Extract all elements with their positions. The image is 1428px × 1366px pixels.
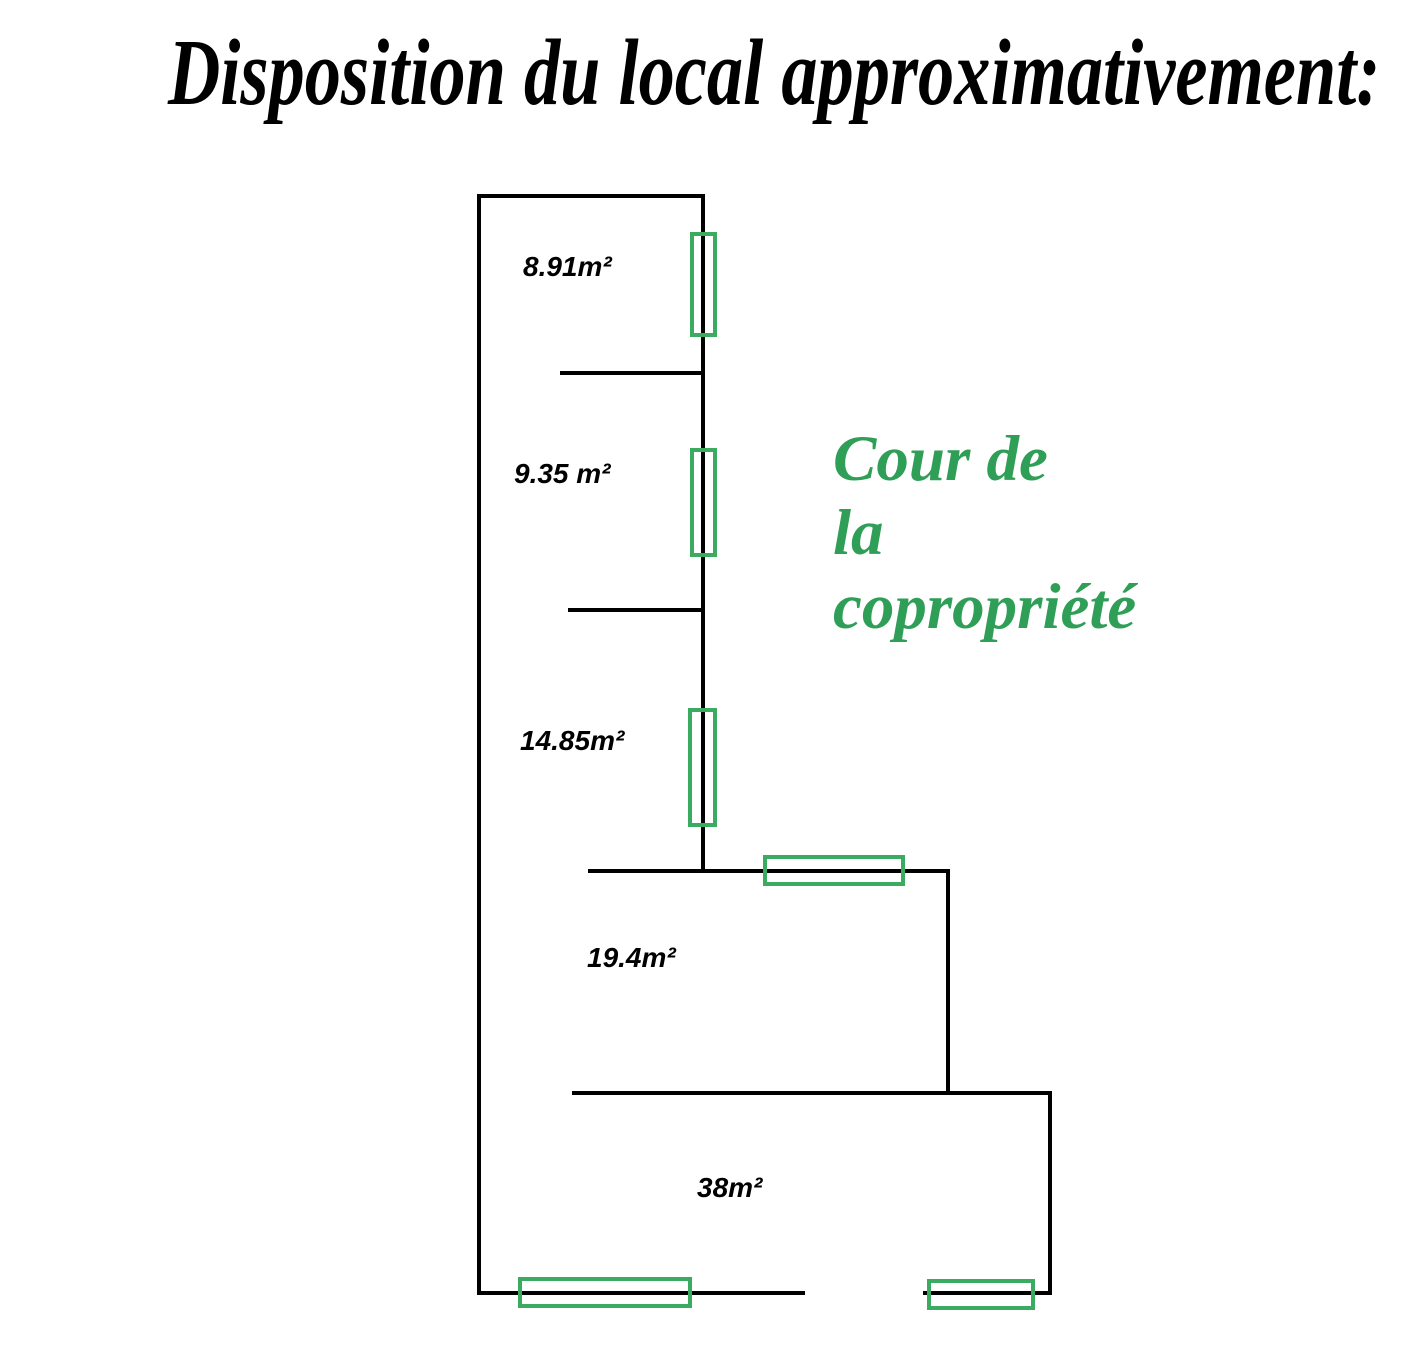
wall-left [477, 194, 481, 1295]
window-room-8-91 [690, 232, 717, 337]
wall-room38-right [1048, 1091, 1052, 1295]
window-room-38-left [518, 1277, 692, 1308]
courtyard-label: Cour de la copropriété [833, 422, 1136, 644]
wall-divider-2 [568, 608, 705, 612]
room-label-38: 38m² [697, 1174, 762, 1202]
page-title: Disposition du local approximativement: [168, 24, 1380, 123]
window-room-14-85 [688, 708, 717, 827]
window-room-38-right [927, 1279, 1035, 1310]
room-label-19-4: 19.4m² [587, 944, 676, 972]
floor-plan-canvas: Disposition du local approximativement: … [0, 0, 1428, 1366]
wall-room38-top [572, 1091, 1052, 1095]
wall-room19-right [946, 869, 950, 1095]
wall-divider-1 [560, 371, 705, 375]
wall-top [477, 194, 705, 198]
courtyard-label-line-2: la [833, 496, 1136, 570]
window-room-9-35 [690, 448, 717, 557]
room-label-8-91: 8.91m² [523, 253, 612, 281]
courtyard-label-line-3: copropriété [833, 570, 1136, 644]
window-room-19-4 [763, 855, 905, 886]
room-label-14-85: 14.85m² [520, 727, 624, 755]
courtyard-label-line-1: Cour de [833, 422, 1136, 496]
room-label-9-35: 9.35 m² [514, 460, 611, 488]
